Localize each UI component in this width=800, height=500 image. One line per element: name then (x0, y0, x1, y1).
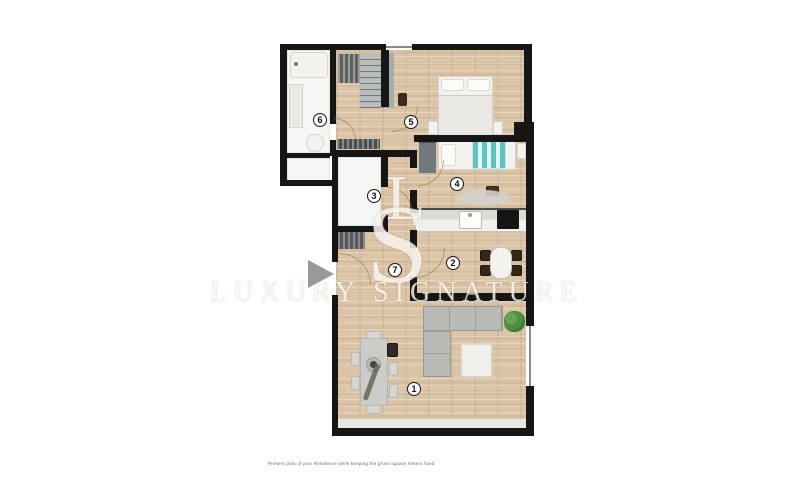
play-icon[interactable] (308, 260, 334, 288)
sofa (423, 306, 503, 331)
wall (330, 44, 336, 124)
coffee-table (461, 344, 492, 377)
room-badge-2: 2 (446, 256, 460, 270)
room-number: 3 (371, 191, 376, 201)
kitchen-table (490, 247, 512, 279)
room-badge-6: 6 (313, 113, 327, 127)
blanket (439, 95, 492, 137)
wall (332, 428, 534, 436)
nightstand (428, 121, 438, 135)
wall (526, 140, 534, 210)
wardrobe-rail (360, 54, 381, 108)
wall (524, 44, 532, 124)
dark-chair (387, 343, 398, 357)
room-number: 4 (454, 179, 459, 189)
wall (526, 386, 534, 436)
room-number: 7 (392, 265, 397, 275)
wall (514, 122, 534, 140)
wall (381, 50, 389, 107)
cooktop (497, 210, 519, 229)
dining-chair (511, 265, 522, 276)
faucet-icon (468, 213, 472, 217)
room-number: 6 (317, 115, 322, 125)
wall (332, 226, 388, 232)
wall (280, 44, 287, 186)
wall (280, 180, 338, 186)
terrace-strip (338, 419, 526, 428)
faucet-icon (294, 62, 298, 66)
caption-text: Present plan of your Residence while kee… (268, 461, 435, 466)
wall (332, 295, 338, 436)
room-number: 1 (411, 384, 416, 394)
pillow (441, 79, 464, 91)
room-badge-7: 7 (388, 263, 402, 277)
sofa-chaise (423, 331, 451, 377)
hall-floor (287, 158, 330, 182)
washing-machine (338, 231, 365, 249)
chair (351, 352, 360, 366)
teal-blanket (472, 141, 506, 169)
wall (332, 150, 338, 262)
window (526, 326, 534, 386)
room-badge-3: 3 (367, 189, 381, 203)
chair (366, 405, 381, 414)
shoe-rack (337, 139, 380, 149)
window (386, 44, 412, 50)
dining-chair (511, 250, 522, 261)
rug (456, 190, 510, 206)
wall (381, 157, 388, 187)
room-number: 5 (408, 117, 413, 127)
chair (389, 362, 398, 376)
wall (526, 208, 534, 302)
nightstand (493, 121, 503, 135)
wall (410, 230, 417, 248)
wardrobe-shelves (338, 54, 360, 83)
floorplan-canvas: L S LUXURY SIGNATURE 1 2 3 4 5 6 7 Prese… (0, 0, 800, 500)
room-badge-1: 1 (407, 382, 421, 396)
chair (366, 331, 381, 339)
tv-icon (398, 93, 407, 106)
wall (332, 150, 417, 157)
toilet (306, 134, 324, 152)
wall (526, 300, 534, 326)
room-badge-4: 4 (450, 177, 464, 191)
nightstand (517, 143, 526, 159)
chair (351, 376, 360, 390)
wall (416, 293, 534, 301)
room-badge-5: 5 (404, 115, 418, 129)
pillow (467, 79, 490, 91)
room-number: 2 (450, 258, 455, 268)
wall (412, 44, 532, 50)
plant (504, 311, 525, 332)
chair (389, 384, 398, 398)
vanity (289, 84, 303, 128)
wall (410, 150, 417, 168)
wall (287, 153, 330, 158)
